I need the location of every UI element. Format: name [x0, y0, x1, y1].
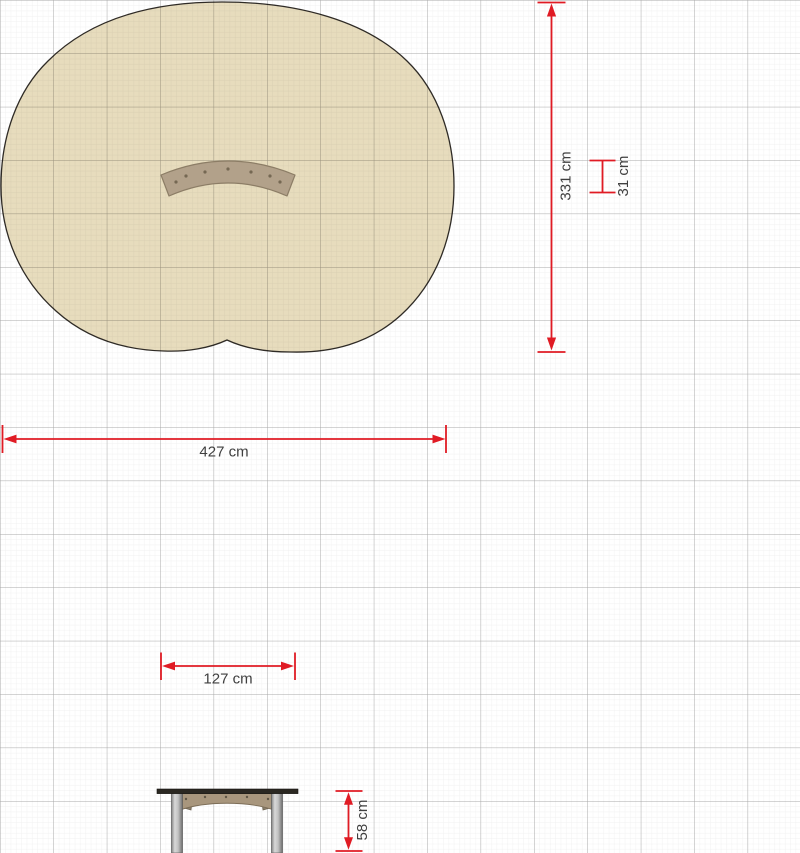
dimension-label-zone-width: 427 cm — [199, 443, 248, 460]
bench-seat-side-view — [157, 789, 298, 794]
dimension-label-bench-depth: 31 cm — [615, 156, 632, 197]
dimension-label-bench-width: 127 cm — [203, 670, 252, 687]
bench-leg-left — [172, 793, 183, 853]
dimension-label-bench-height: 58 cm — [354, 800, 371, 841]
dimension-label-zone-height: 331 cm — [557, 151, 574, 200]
bench-leg-right — [272, 793, 283, 853]
drawing-svg: 427 cm 331 cm 31 cm 127 cm — [0, 0, 800, 853]
technical-drawing-canvas: 427 cm 331 cm 31 cm 127 cm — [0, 0, 800, 853]
